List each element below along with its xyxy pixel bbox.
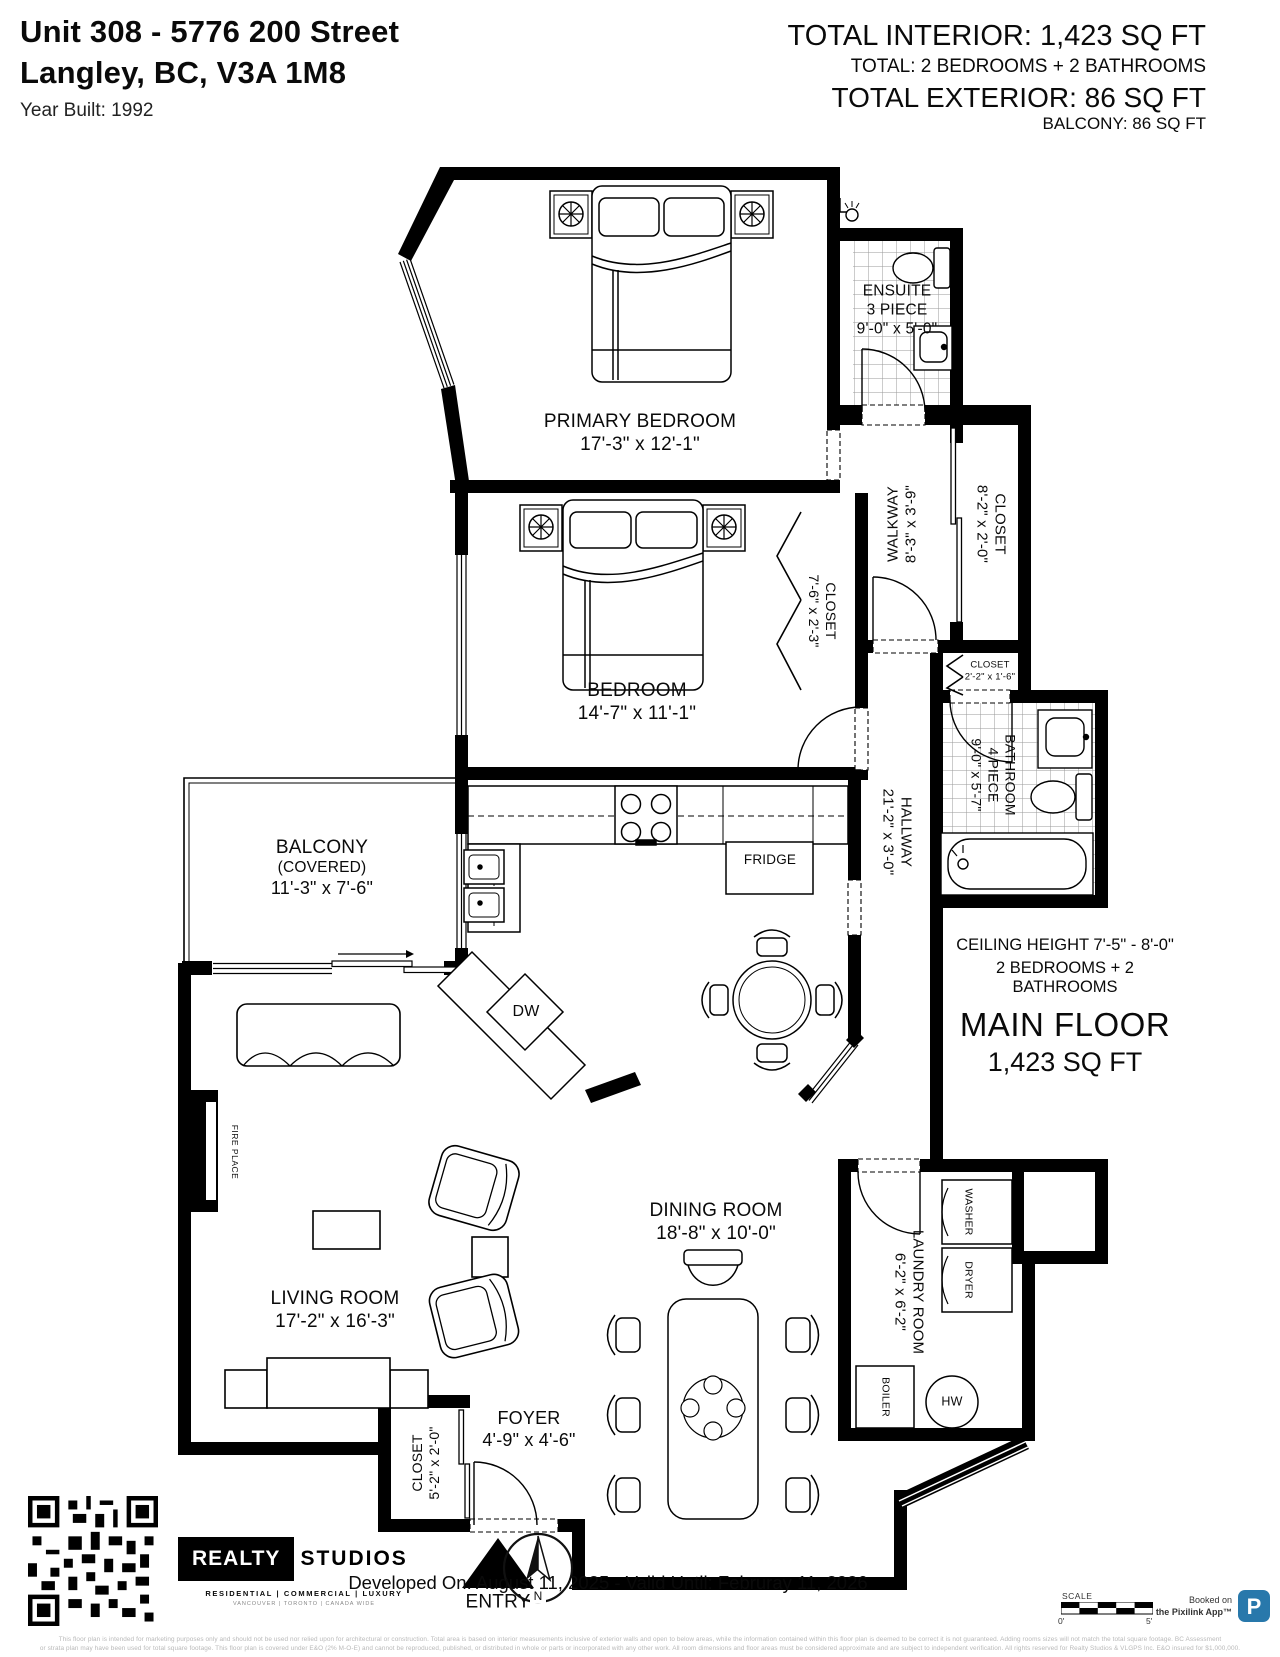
room-label-closet-walkway: CLOSET8'-2" x 2'-0" (972, 485, 1009, 563)
room-label-bedroom: BEDROOM14'-7" x 11'-1" (578, 679, 696, 725)
svg-text:P: P (1247, 1594, 1262, 1619)
side-table (472, 1237, 508, 1277)
brand-logo-secondary: STUDIOS (300, 1547, 407, 1571)
room-label-dining-room: DINING ROOM18'-8" x 10'-0" (649, 1199, 782, 1245)
fireplace-label: FIRE PLACE (230, 1125, 240, 1180)
bedroom-bed (520, 500, 745, 690)
floor-summary: CEILING HEIGHT 7'-5" - 8'-0" 2 BEDROOMS … (945, 936, 1185, 1078)
stove (615, 786, 677, 845)
disclaimer-line-2: or strata plan may have been used for to… (0, 1645, 1280, 1652)
room-label-primary-bedroom: PRIMARY BEDROOM17'-3" x 12'-1" (544, 410, 736, 456)
hot-water-label: HW (941, 1394, 962, 1409)
room-label-living-room: LIVING ROOM17'-2" x 16'-3" (271, 1287, 400, 1333)
floor-name: MAIN FLOOR (945, 1006, 1185, 1044)
shower-head-icon (840, 198, 859, 221)
coffee-table (313, 1211, 380, 1249)
dryer-label: DRYER (962, 1261, 975, 1299)
floor-plan-page: Unit 308 - 5776 200 Street Langley, BC, … (0, 0, 1280, 1657)
dining-set (608, 1250, 819, 1519)
scale-zero: 0' (1058, 1616, 1064, 1626)
disclaimer-line-1: This floor plan is intended for marketin… (0, 1636, 1280, 1643)
booked-on-text: Booked on the Pixilink App™ (1120, 1594, 1232, 1618)
room-label-bathroom: BATHROOM4 PIECE9'-0" x 5'-7" (967, 734, 1018, 815)
room-label-foyer: FOYER4'-9" x 4'-6" (482, 1408, 575, 1452)
washer-box (942, 1180, 1012, 1244)
room-label-closet-hall: CLOSET2'-2" x 1'-6" (965, 659, 1015, 682)
ceiling-height: CEILING HEIGHT 7'-5" - 8'-0" (945, 936, 1185, 955)
room-label-balcony: BALCONY(COVERED)11'-3" x 7'-6" (271, 836, 373, 900)
dryer-box (942, 1248, 1012, 1312)
brand-subline: VANCOUVER | TORONTO | CANADA WIDE (178, 1601, 430, 1607)
bathroom-sink (1038, 710, 1092, 768)
fireplace-slot (206, 1102, 216, 1200)
room-label-ensuite: ENSUITE3 PIECE9'-0" x 5'-0" (857, 283, 938, 340)
room-label-laundry-room: LAUNDRY ROOM6'-2" x 6'-2" (890, 1230, 927, 1354)
fridge-label: FRIDGE (744, 852, 796, 868)
sofa-bottom (225, 1358, 428, 1408)
pixilink-app-icon: P (1238, 1590, 1270, 1622)
room-label-walkway: WALKWAY8'-3" x 3'-9" (885, 485, 922, 563)
qr-code (28, 1496, 158, 1626)
beds-baths: 2 BEDROOMS + 2 BATHROOMS (945, 959, 1185, 997)
washer-label: WASHER (962, 1189, 975, 1236)
room-label-hallway: HALLWAY21'-2" x 3'-0" (878, 789, 915, 876)
bathtub (941, 833, 1093, 895)
floor-area: 1,423 SQ FT (945, 1047, 1185, 1078)
floor-plan-drawing (0, 0, 1280, 1657)
dishwasher-label: DW (512, 1002, 539, 1022)
developed-line: Developed On: August 11, 2025 - Valid Un… (348, 1572, 867, 1594)
living-room-furniture (206, 1004, 522, 1408)
compass: N (500, 1530, 576, 1606)
kitchen-table (702, 930, 842, 1070)
sofa-top (237, 1004, 400, 1066)
room-label-closet-bedroom: CLOSET7'-6" x 2'-3" (805, 574, 839, 647)
boiler-label: BOILER (879, 1377, 892, 1417)
dining-head-chair (684, 1250, 742, 1285)
brand-logo-primary: REALTY (178, 1537, 294, 1581)
room-label-closet-foyer: CLOSET5'-2" x 2'-0" (409, 1426, 443, 1499)
scale-label: SCALE (1062, 1591, 1092, 1601)
